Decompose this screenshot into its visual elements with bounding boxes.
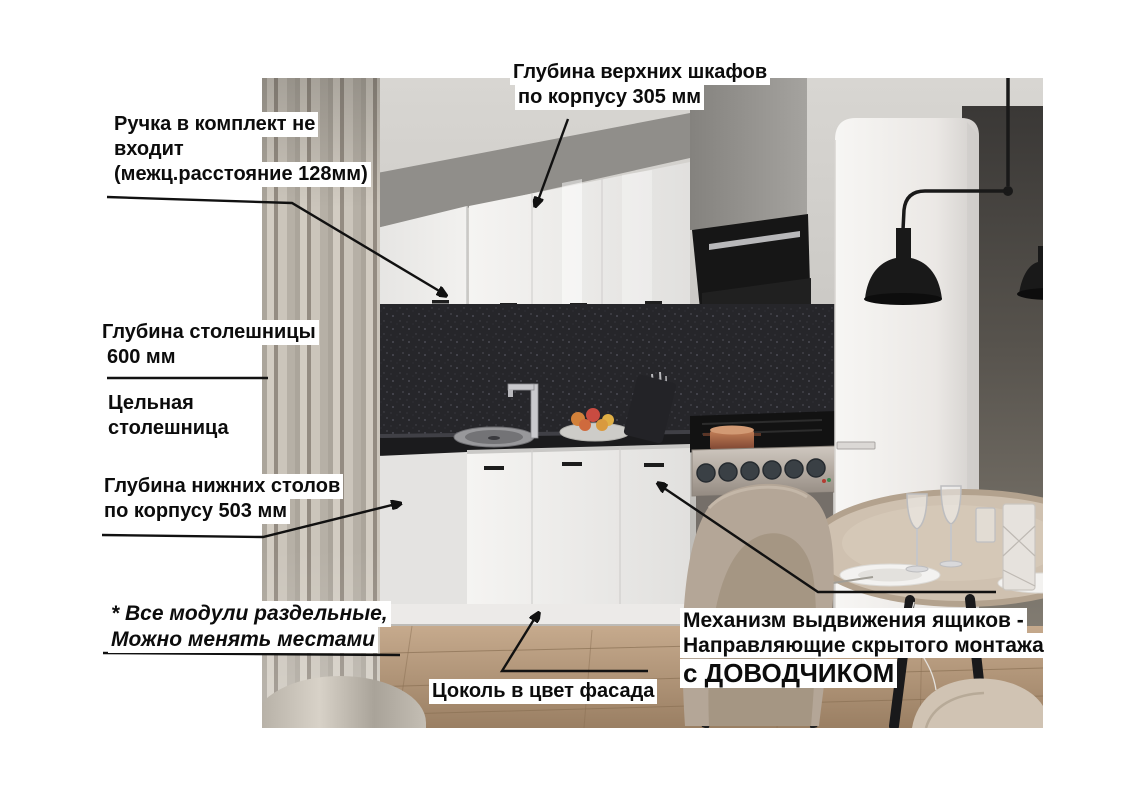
dining-chair-front xyxy=(683,484,834,728)
annotation-modules-note: * Все модули раздельные, Можно менять ме… xyxy=(108,601,391,653)
corner-sink xyxy=(454,427,534,447)
annotation-line: по корпусу 503 мм xyxy=(101,499,290,524)
upper-cabinet-handle xyxy=(645,301,662,305)
tumbler-glass xyxy=(976,508,995,542)
annotation-line: по корпусу 305 мм xyxy=(515,85,704,110)
lantern xyxy=(1003,504,1035,590)
annotated-kitchen-image: Глубина верхних шкафов по корпусу 305 мм… xyxy=(0,0,1123,794)
copper-pot xyxy=(703,426,761,451)
base-cabinet-handle xyxy=(644,463,664,467)
annotation-line: Цельная xyxy=(105,391,197,416)
annotation-line: * Все модули раздельные, xyxy=(108,601,391,627)
annotation-line: Цоколь в цвет фасада xyxy=(429,679,657,704)
base-cabinet-handle xyxy=(484,466,504,470)
annotation-line: Глубина верхних шкафов xyxy=(510,60,770,85)
annotation-line: 600 мм xyxy=(104,345,179,370)
annotation-upper-cabinet-depth: Глубина верхних шкафов по корпусу 305 мм xyxy=(510,60,770,110)
annotation-line: Механизм выдвижения ящиков - xyxy=(680,608,1027,633)
annotation-line: Направляющие скрытого монтажа xyxy=(680,633,1047,658)
annotation-drawer-mechanism: Механизм выдвижения ящиков - Направляющи… xyxy=(680,608,1047,688)
annotation-base-cabinet-depth: Глубина нижних столов по корпусу 503 мм xyxy=(101,474,343,524)
annotation-countertop-depth: Глубина столешницы 600 мм xyxy=(99,320,319,370)
annotation-line: с ДОВОДЧИКОМ xyxy=(680,659,897,688)
annotation-line: Глубина нижних столов xyxy=(101,474,343,499)
annotation-line: (межц.расстояние 128мм) xyxy=(111,162,371,187)
base-cabinets xyxy=(377,444,690,612)
base-cabinet-handle xyxy=(562,462,582,466)
annotation-line: Глубина столешницы xyxy=(99,320,319,345)
annotation-line: входит xyxy=(111,137,187,162)
annotation-solid-countertop: Цельная столешница xyxy=(105,391,232,441)
upper-cabinet-handle xyxy=(432,300,449,304)
annotation-line: Ручка в комплект не xyxy=(111,112,318,137)
annotation-line: Можно менять местами xyxy=(108,627,378,653)
annotation-line: столешница xyxy=(105,416,232,441)
annotation-plinth-note: Цоколь в цвет фасада xyxy=(429,679,657,704)
annotation-handle-note: Ручка в комплект не входит (межц.расстоя… xyxy=(111,112,371,187)
fridge-handle xyxy=(837,442,875,449)
